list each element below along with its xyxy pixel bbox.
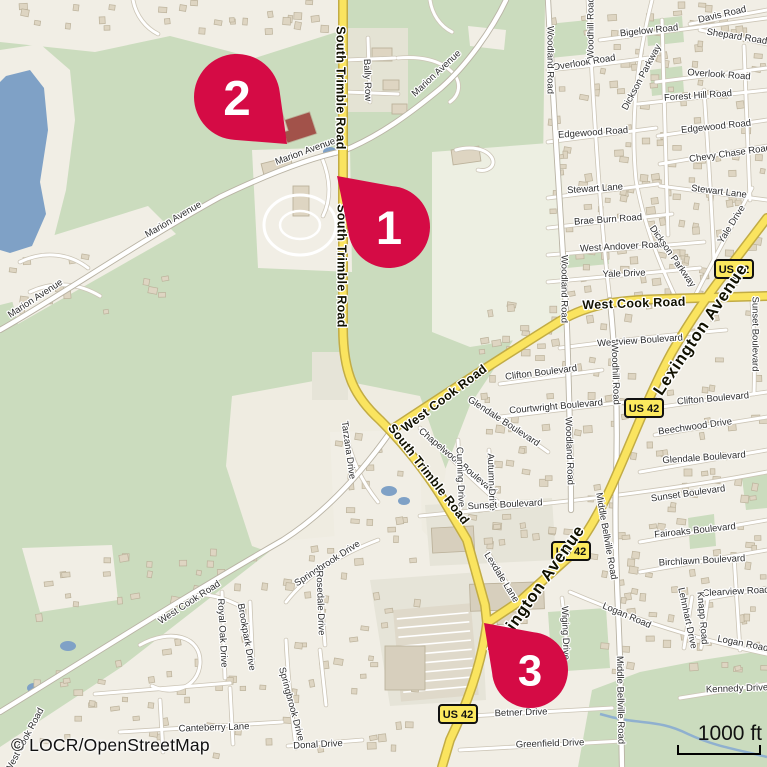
building xyxy=(689,569,695,576)
us-42-shield: US 42 xyxy=(625,399,663,417)
building xyxy=(243,18,248,25)
building xyxy=(649,612,657,617)
building xyxy=(502,514,510,519)
building xyxy=(551,339,559,347)
building xyxy=(103,309,109,314)
marker-number: 2 xyxy=(223,71,251,126)
building xyxy=(484,538,493,545)
building xyxy=(164,18,170,24)
land-parcel xyxy=(432,142,566,347)
building xyxy=(414,599,421,607)
building xyxy=(630,257,638,265)
building xyxy=(627,559,635,567)
building xyxy=(632,551,640,559)
building xyxy=(346,508,354,513)
building xyxy=(130,593,140,600)
building xyxy=(262,583,268,591)
building xyxy=(148,676,155,683)
building xyxy=(167,671,172,677)
building xyxy=(640,593,646,601)
building xyxy=(179,560,186,566)
building xyxy=(305,592,311,599)
building xyxy=(490,375,496,382)
building xyxy=(240,686,246,690)
building xyxy=(285,583,294,591)
building xyxy=(715,358,723,362)
building xyxy=(673,58,681,64)
building xyxy=(73,602,79,607)
building xyxy=(668,614,674,622)
building xyxy=(410,558,417,563)
building xyxy=(692,227,699,234)
building xyxy=(267,11,273,18)
building xyxy=(405,722,413,728)
building xyxy=(729,170,737,176)
building xyxy=(479,349,485,354)
shield-label: US 42 xyxy=(629,403,660,415)
building xyxy=(294,22,301,30)
building xyxy=(109,5,116,11)
building xyxy=(559,87,565,92)
park-area xyxy=(742,474,767,510)
building xyxy=(486,429,492,434)
building xyxy=(493,524,500,529)
building xyxy=(190,0,197,6)
building xyxy=(652,278,661,286)
building xyxy=(710,469,715,475)
building xyxy=(65,23,70,29)
building xyxy=(373,592,380,600)
building xyxy=(162,649,172,655)
building xyxy=(480,337,489,344)
building xyxy=(367,742,376,749)
building xyxy=(722,662,728,667)
street-label: South Trimble Road xyxy=(335,204,349,327)
street-label: Woodland Road xyxy=(545,26,556,94)
building xyxy=(311,546,319,553)
building xyxy=(522,469,530,475)
building xyxy=(689,178,695,183)
building xyxy=(761,666,767,671)
building xyxy=(755,536,761,541)
building xyxy=(741,495,749,503)
building xyxy=(626,143,631,147)
building xyxy=(621,597,627,603)
building xyxy=(161,276,168,282)
building xyxy=(649,524,657,529)
map-attribution: © LOCR/OpenStreetMap xyxy=(11,735,210,756)
building xyxy=(185,697,190,703)
building xyxy=(751,483,758,491)
building xyxy=(614,45,620,50)
building xyxy=(74,690,83,696)
building xyxy=(659,218,666,226)
street-label: Bally Row xyxy=(361,59,373,102)
building xyxy=(122,697,127,702)
building xyxy=(750,607,755,612)
building xyxy=(62,572,71,577)
building xyxy=(361,626,369,631)
building xyxy=(294,12,302,19)
building xyxy=(207,561,214,567)
building xyxy=(341,573,347,580)
building xyxy=(617,89,624,94)
building xyxy=(626,662,634,670)
building xyxy=(550,306,557,313)
building xyxy=(701,578,709,584)
shield-label: US 42 xyxy=(443,709,474,721)
building xyxy=(684,256,690,263)
building xyxy=(684,469,692,476)
building xyxy=(234,584,240,591)
building xyxy=(133,716,140,721)
building xyxy=(673,11,682,16)
building xyxy=(689,663,698,671)
building xyxy=(143,278,150,285)
building xyxy=(306,0,313,5)
building xyxy=(646,636,654,641)
marker-number: 1 xyxy=(376,201,402,254)
building xyxy=(668,507,676,512)
building xyxy=(73,4,79,11)
building xyxy=(736,101,744,109)
building xyxy=(99,17,105,24)
street-label: Kennedy Drive xyxy=(706,682,767,695)
building xyxy=(600,68,606,74)
building xyxy=(745,562,751,570)
building xyxy=(663,640,671,647)
street-label: South Trimble Road xyxy=(334,26,348,149)
building xyxy=(629,566,639,574)
building xyxy=(36,614,43,622)
street-label: Rosedale Drive xyxy=(314,570,327,635)
building xyxy=(601,324,607,330)
building xyxy=(503,336,510,342)
building xyxy=(583,425,592,433)
lake xyxy=(0,70,48,253)
pond xyxy=(398,497,410,505)
building xyxy=(536,355,545,360)
street-label: Woodhill Road xyxy=(585,0,596,59)
pond xyxy=(381,486,397,496)
building xyxy=(520,523,526,529)
building xyxy=(385,608,393,613)
building xyxy=(735,665,742,670)
building xyxy=(210,549,216,556)
building xyxy=(349,637,358,642)
building xyxy=(391,745,396,751)
building xyxy=(507,305,514,312)
building xyxy=(701,471,708,476)
building xyxy=(369,735,377,741)
building xyxy=(622,535,630,540)
building xyxy=(213,753,220,759)
building xyxy=(532,533,539,540)
building xyxy=(646,206,656,214)
building xyxy=(309,555,315,561)
building xyxy=(642,138,650,144)
building xyxy=(699,3,706,8)
building xyxy=(538,344,546,349)
building xyxy=(584,286,591,293)
building xyxy=(81,254,89,260)
building xyxy=(388,527,396,532)
building xyxy=(283,17,291,25)
building-large xyxy=(385,646,425,690)
building xyxy=(647,442,653,448)
building xyxy=(583,265,589,270)
building xyxy=(492,340,502,347)
building xyxy=(630,452,636,460)
building xyxy=(698,41,703,47)
building xyxy=(260,685,266,690)
building xyxy=(754,54,763,59)
building xyxy=(589,357,595,363)
building xyxy=(619,156,628,162)
building xyxy=(574,429,581,435)
building xyxy=(119,554,129,562)
building xyxy=(309,679,315,687)
building xyxy=(371,663,378,667)
building xyxy=(396,722,402,730)
building xyxy=(34,20,41,25)
building xyxy=(147,561,153,567)
building xyxy=(594,484,601,490)
building xyxy=(586,315,594,323)
building xyxy=(354,558,363,565)
map-viewport[interactable]: US 42US 42US 42US 42Davis RoadBigelow Ro… xyxy=(0,0,767,767)
building xyxy=(110,706,119,711)
building xyxy=(519,448,525,454)
building xyxy=(698,80,703,86)
building xyxy=(147,571,153,578)
building xyxy=(21,9,30,17)
building xyxy=(117,597,122,604)
building xyxy=(104,558,111,563)
building xyxy=(605,198,610,203)
building xyxy=(545,476,552,481)
street-label: Betner Drive xyxy=(494,706,547,719)
building xyxy=(229,18,234,22)
building xyxy=(760,168,765,174)
building xyxy=(726,200,733,208)
building xyxy=(148,702,154,708)
building xyxy=(179,5,186,12)
building xyxy=(65,594,71,599)
building xyxy=(521,530,528,538)
building xyxy=(265,28,273,34)
building xyxy=(602,571,608,578)
building xyxy=(266,739,272,746)
building xyxy=(214,20,222,26)
building xyxy=(673,194,681,200)
scale-bar xyxy=(677,745,761,755)
building xyxy=(702,387,708,393)
building xyxy=(506,460,514,466)
marker-number: 3 xyxy=(518,647,542,696)
building xyxy=(103,572,110,577)
building xyxy=(608,14,617,21)
building xyxy=(542,424,550,431)
building xyxy=(677,518,686,525)
building xyxy=(614,150,623,157)
building xyxy=(550,209,557,214)
building xyxy=(148,286,158,294)
building xyxy=(89,700,95,706)
building xyxy=(44,581,53,587)
building xyxy=(481,393,488,400)
building xyxy=(699,432,705,440)
building xyxy=(610,81,618,88)
building xyxy=(521,326,529,331)
building xyxy=(321,25,329,33)
building xyxy=(115,660,122,667)
building xyxy=(499,539,505,545)
building xyxy=(368,656,373,661)
building xyxy=(104,26,110,31)
building xyxy=(488,310,494,317)
building xyxy=(631,588,638,594)
building xyxy=(175,639,182,646)
building xyxy=(158,293,165,298)
building xyxy=(673,145,681,150)
building xyxy=(394,536,399,543)
building xyxy=(158,7,167,13)
building xyxy=(9,268,17,273)
building xyxy=(351,519,360,524)
building xyxy=(760,575,766,579)
building-large xyxy=(383,80,399,90)
building xyxy=(640,174,648,182)
building xyxy=(548,527,556,534)
land-parcel xyxy=(345,28,408,112)
building xyxy=(679,220,685,227)
building xyxy=(693,203,699,210)
building xyxy=(396,517,404,525)
building xyxy=(367,519,373,525)
building xyxy=(709,385,715,392)
building xyxy=(600,643,609,650)
building xyxy=(651,173,660,180)
building xyxy=(624,314,632,322)
building xyxy=(585,173,593,182)
building xyxy=(295,642,303,649)
building xyxy=(378,734,386,742)
building xyxy=(355,433,363,440)
street-label: Yale Drive xyxy=(602,268,645,280)
street-label: Woodland Road xyxy=(559,255,570,323)
scale-bar-label: 1000 ft xyxy=(622,722,762,746)
building xyxy=(352,688,358,694)
building xyxy=(75,716,82,721)
street-label: Sunset Boulevard xyxy=(750,297,761,372)
building xyxy=(333,658,343,665)
building xyxy=(360,674,366,678)
building xyxy=(199,28,206,35)
building xyxy=(584,204,592,209)
building xyxy=(196,570,202,575)
building xyxy=(381,622,388,628)
building xyxy=(628,373,636,379)
building xyxy=(98,679,106,684)
building xyxy=(744,614,750,621)
pond xyxy=(60,641,76,651)
map-canvas[interactable]: US 42US 42US 42US 42Davis RoadBigelow Ro… xyxy=(0,0,767,767)
building xyxy=(398,471,404,476)
building xyxy=(620,195,627,202)
us-42-shield: US 42 xyxy=(439,705,477,723)
street-label: Woodhill Road xyxy=(609,343,622,405)
building xyxy=(547,393,554,399)
building xyxy=(750,496,757,501)
building xyxy=(311,15,320,22)
building xyxy=(678,2,685,8)
building xyxy=(651,197,659,204)
building xyxy=(63,678,70,683)
